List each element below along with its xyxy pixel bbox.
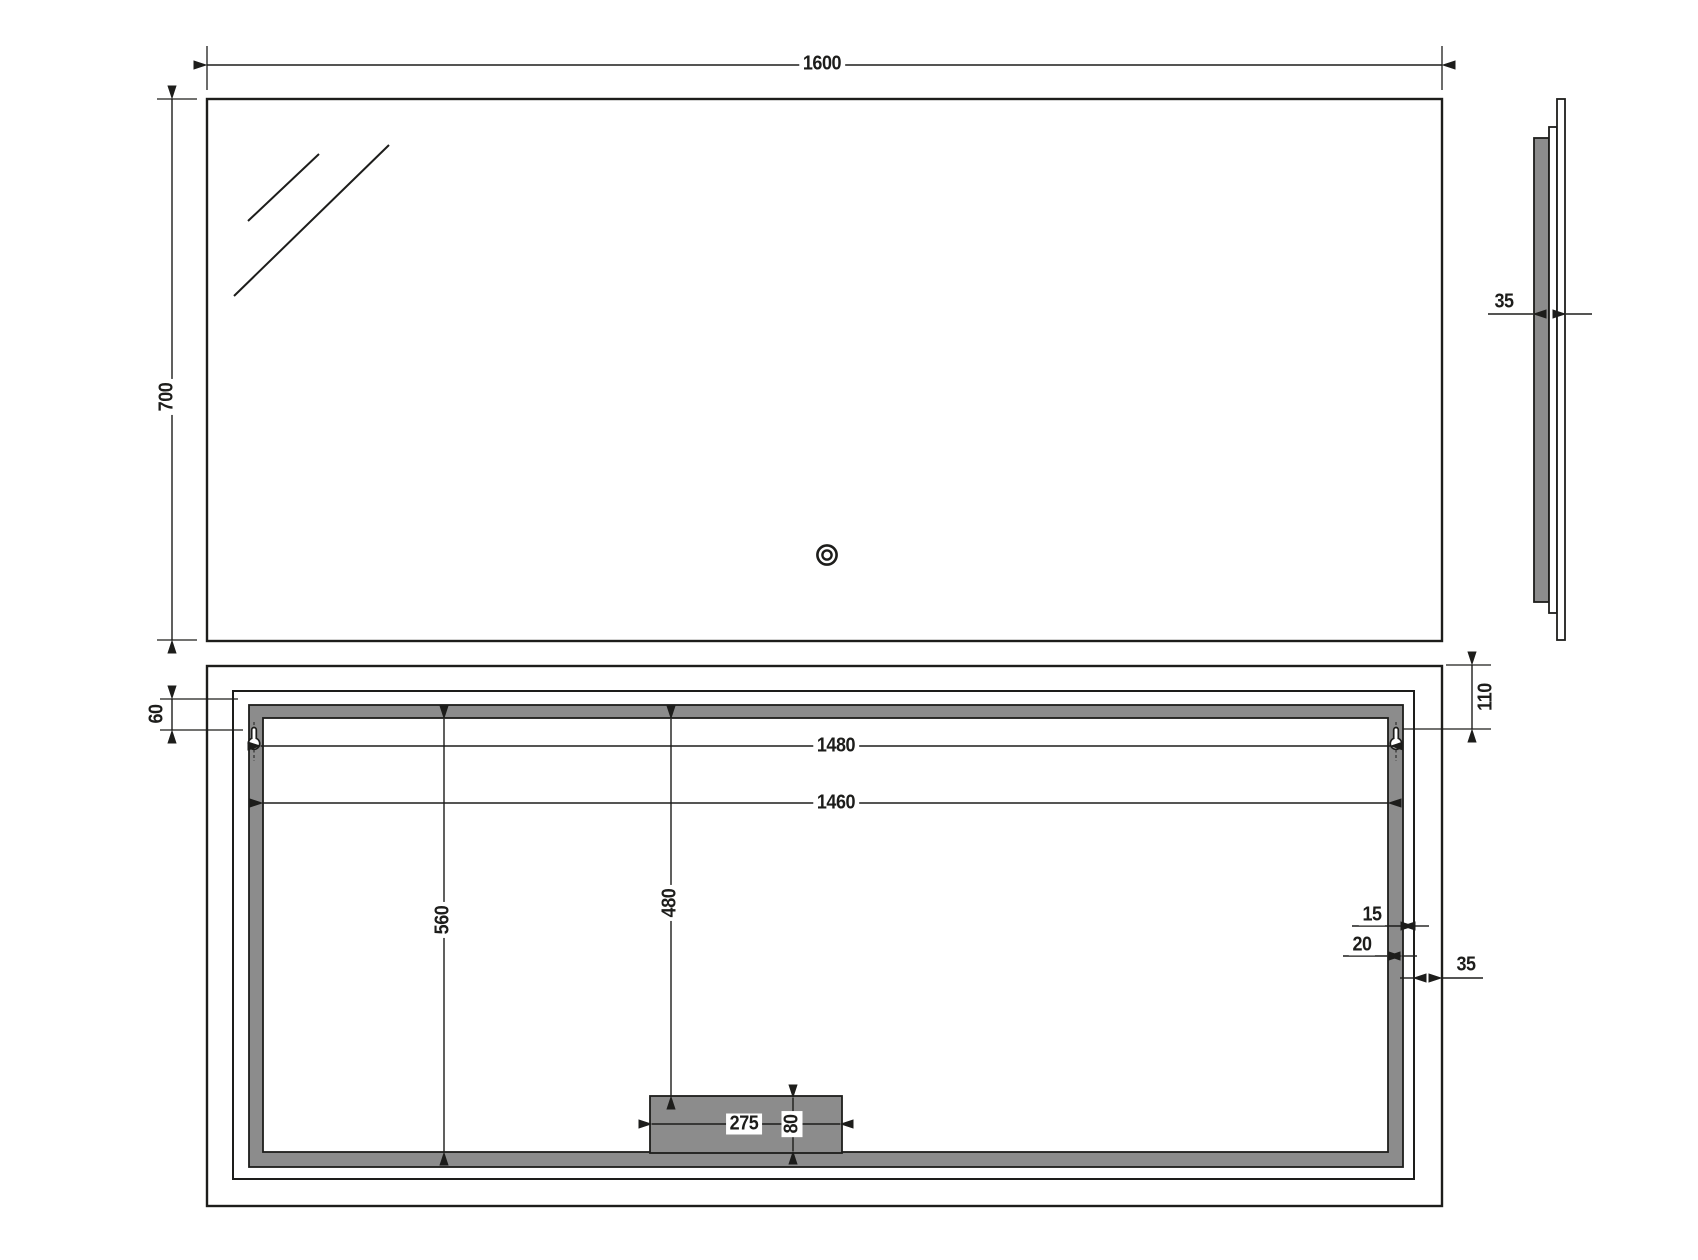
side-view (1488, 99, 1592, 640)
dim-label-edge-margin: 35 (1453, 955, 1479, 976)
dim-label-box-height: 80 (782, 1111, 803, 1137)
dim-label-box-offset: 480 (660, 885, 681, 921)
dim-label-band-width: 20 (1349, 935, 1375, 956)
front-view (157, 46, 1442, 641)
technical-drawing-canvas: 1600 700 35 60 110 1480 1460 560 480 15 … (0, 0, 1698, 1260)
dim-label-box-width: 275 (726, 1114, 762, 1135)
drawing-linework (0, 0, 1698, 1260)
side-glass-profile (1557, 99, 1565, 640)
dim-label-hanger-spacing: 1480 (813, 736, 858, 757)
dim-label-inner-width: 1460 (813, 793, 858, 814)
dim-label-front-width: 1600 (799, 54, 844, 75)
side-backplate-profile (1549, 127, 1557, 613)
dim-label-side-thickness: 35 (1491, 292, 1517, 313)
dim-label-hanger-top-offset: 60 (147, 701, 168, 727)
dim-label-frame-gap: 15 (1359, 905, 1385, 926)
dim-label-front-height: 700 (157, 379, 178, 415)
dim-label-inner-height: 560 (433, 902, 454, 938)
dim-label-hanger-edge-offset: 110 (1476, 680, 1497, 715)
side-frame-profile (1534, 138, 1549, 602)
